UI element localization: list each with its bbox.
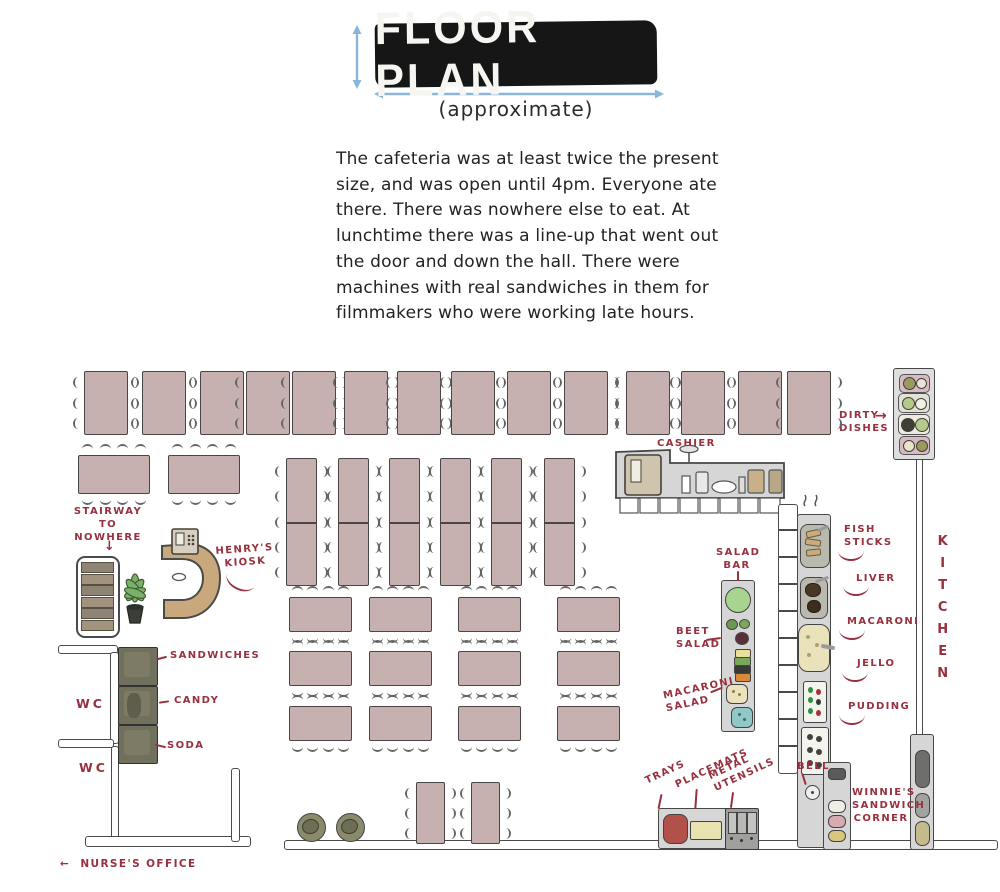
- pointer-curve: [839, 713, 865, 725]
- chair: [492, 640, 503, 650]
- chair: [386, 377, 396, 388]
- chair: [207, 495, 218, 505]
- chair: [275, 491, 285, 502]
- plan-area: STAIRWAY TO NOWHERE ↓ HENRY'S KIOSK SAND…: [0, 0, 1000, 892]
- dining-table: [289, 651, 352, 686]
- stair-step: [81, 585, 114, 596]
- chair: [560, 640, 571, 650]
- chair: [533, 517, 543, 528]
- dining-table: [344, 371, 388, 435]
- trash-can: [336, 813, 365, 842]
- dining-table: [369, 597, 432, 632]
- stair-step: [81, 574, 114, 585]
- chair: [533, 466, 543, 477]
- dining-table: [440, 458, 471, 586]
- chair: [492, 695, 503, 705]
- chair: [281, 398, 291, 409]
- rail-rung: [779, 637, 797, 639]
- label-sandwiches: SANDWICHES: [170, 649, 260, 662]
- chair: [131, 398, 141, 409]
- chair: [418, 695, 429, 705]
- chair: [131, 418, 141, 429]
- chair: [403, 695, 414, 705]
- chair: [576, 491, 586, 502]
- chair: [372, 640, 383, 650]
- pointer-curve: [842, 670, 868, 682]
- rail-rung: [779, 610, 797, 612]
- chair: [480, 567, 490, 578]
- chair: [575, 640, 586, 650]
- fish-sticks-tray: [800, 524, 830, 568]
- chair: [461, 640, 472, 650]
- chair: [323, 742, 334, 752]
- chair: [333, 398, 343, 409]
- cash-register-icon: [625, 455, 661, 495]
- pointer-curve: [223, 572, 255, 596]
- rail-rung: [779, 718, 797, 720]
- label-pudding: PUDDING: [848, 700, 910, 713]
- macaroni-tray: [798, 624, 830, 672]
- chair: [403, 640, 414, 650]
- dining-table: [458, 597, 521, 632]
- chair: [100, 444, 111, 454]
- chair: [507, 640, 518, 650]
- chair: [307, 695, 318, 705]
- pointer-curve: [843, 584, 869, 596]
- henrys-kiosk: [160, 528, 226, 632]
- trash-can: [297, 813, 326, 842]
- chair: [533, 567, 543, 578]
- chair: [492, 586, 503, 596]
- rail-rung: [779, 691, 797, 693]
- chair: [418, 742, 429, 752]
- label-wc-upper: WC: [76, 696, 105, 713]
- chair: [591, 640, 602, 650]
- chair: [727, 418, 737, 429]
- chair: [553, 377, 563, 388]
- chair: [507, 586, 518, 596]
- dining-table: [491, 458, 522, 586]
- chair: [327, 542, 337, 553]
- chair: [372, 742, 383, 752]
- chair: [172, 495, 183, 505]
- dining-table: [458, 651, 521, 686]
- dining-table: [507, 371, 551, 435]
- bell-button-icon: [805, 785, 820, 800]
- chair: [82, 495, 93, 505]
- dining-table: [142, 371, 186, 435]
- wall: [231, 768, 240, 842]
- chair: [378, 567, 388, 578]
- chair: [553, 418, 563, 429]
- chair: [446, 828, 456, 839]
- pointer-curve: [839, 628, 865, 640]
- chair: [480, 491, 490, 502]
- dining-table: [389, 458, 420, 586]
- chair: [100, 495, 111, 505]
- chair: [832, 377, 842, 388]
- chair: [418, 640, 429, 650]
- dining-table: [544, 458, 575, 586]
- pointer-curve: [838, 549, 864, 561]
- chair: [323, 586, 334, 596]
- chair: [429, 542, 439, 553]
- chair: [576, 542, 586, 553]
- stair-step: [81, 608, 114, 619]
- pointer-line: [730, 792, 734, 808]
- chair: [440, 398, 450, 409]
- chair: [461, 695, 472, 705]
- chair: [275, 542, 285, 553]
- chair: [225, 495, 236, 505]
- chair: [429, 517, 439, 528]
- chair: [378, 491, 388, 502]
- liver-tray: [800, 577, 828, 619]
- label-jello: JELLO: [857, 657, 895, 670]
- label-henrys-kiosk: HENRY'S KIOSK: [215, 541, 275, 571]
- chair: [235, 377, 245, 388]
- chair: [135, 495, 146, 505]
- chair: [496, 418, 506, 429]
- chair: [372, 695, 383, 705]
- chair: [460, 808, 470, 819]
- chair: [387, 742, 398, 752]
- chair: [189, 377, 199, 388]
- chair: [476, 742, 487, 752]
- chair: [275, 567, 285, 578]
- pointer-line: [737, 571, 739, 581]
- chair: [615, 418, 625, 429]
- chair: [307, 586, 318, 596]
- chair: [225, 444, 236, 454]
- dining-table: [338, 458, 369, 586]
- dining-table: [292, 371, 336, 435]
- chair: [323, 640, 334, 650]
- utensil-bins-icon: [725, 808, 759, 850]
- pointer-line: [694, 789, 697, 809]
- chair: [405, 828, 415, 839]
- wall-bottom: [284, 840, 998, 850]
- chair: [387, 695, 398, 705]
- tray-rail: [778, 504, 798, 774]
- pointer-line: [157, 656, 167, 660]
- label-candy: CANDY: [174, 694, 219, 707]
- chair: [576, 567, 586, 578]
- cashier-counter: [612, 438, 792, 520]
- chair: [429, 567, 439, 578]
- chair: [292, 695, 303, 705]
- chair: [235, 398, 245, 409]
- chair: [338, 742, 349, 752]
- chair: [207, 444, 218, 454]
- steam-icon: [799, 490, 827, 508]
- chair: [606, 586, 617, 596]
- wall-nurses-office: [85, 836, 251, 847]
- salad-bar-counter: [721, 580, 755, 732]
- chair: [446, 788, 456, 799]
- label-wc-lower: WC: [79, 760, 108, 777]
- chair: [476, 695, 487, 705]
- rail-rung: [779, 664, 797, 666]
- chair: [575, 695, 586, 705]
- dining-table: [787, 371, 831, 435]
- chair: [460, 788, 470, 799]
- chair: [440, 377, 450, 388]
- chair: [591, 742, 602, 752]
- chair: [523, 542, 533, 553]
- chair: [429, 466, 439, 477]
- chair: [606, 640, 617, 650]
- chair: [189, 398, 199, 409]
- chair: [405, 788, 415, 799]
- pointer-line: [657, 794, 662, 809]
- dining-table: [416, 782, 445, 844]
- rail-rung: [779, 556, 797, 558]
- chair: [135, 444, 146, 454]
- chair: [307, 640, 318, 650]
- serving-spoon-icon: [817, 525, 829, 533]
- down-arrow-icon: ↓: [104, 539, 115, 554]
- chair: [73, 398, 83, 409]
- dirty-dishes-cart: [893, 368, 935, 460]
- right-arrow-icon: →: [875, 408, 887, 424]
- rail-rung: [779, 583, 797, 585]
- chair: [560, 695, 571, 705]
- dining-table: [681, 371, 725, 435]
- dining-table: [369, 706, 432, 741]
- chair: [333, 377, 343, 388]
- floor-plan-illustration: FLOOR PLAN (approximate) The cafeteria w…: [0, 0, 1000, 892]
- chair: [575, 586, 586, 596]
- chair: [523, 466, 533, 477]
- dining-table: [458, 706, 521, 741]
- chair: [307, 742, 318, 752]
- chair: [476, 640, 487, 650]
- chair: [387, 586, 398, 596]
- chair: [405, 808, 415, 819]
- chair: [338, 695, 349, 705]
- chair: [131, 377, 141, 388]
- chair: [73, 418, 83, 429]
- stair-step: [81, 620, 114, 631]
- chair: [591, 586, 602, 596]
- chair: [82, 444, 93, 454]
- chair: [591, 695, 602, 705]
- chair: [476, 586, 487, 596]
- winnies-counter: [823, 762, 851, 850]
- dining-table: [626, 371, 670, 435]
- chair: [190, 444, 201, 454]
- chair: [117, 444, 128, 454]
- chair: [275, 517, 285, 528]
- chair: [327, 517, 337, 528]
- dining-table: [78, 455, 150, 494]
- chair: [496, 398, 506, 409]
- dining-table: [557, 706, 620, 741]
- stair-step: [81, 597, 114, 608]
- chair: [461, 586, 472, 596]
- jello-tray: [803, 681, 827, 723]
- chair: [460, 828, 470, 839]
- chair: [507, 695, 518, 705]
- chair: [523, 517, 533, 528]
- label-nurses-office: ← NURSE'S OFFICE: [60, 858, 197, 872]
- chair: [496, 377, 506, 388]
- dining-table: [168, 455, 240, 494]
- chair: [576, 517, 586, 528]
- chair: [189, 418, 199, 429]
- chair: [190, 495, 201, 505]
- label-salad-bar: SALAD BAR: [716, 546, 758, 572]
- chair: [553, 398, 563, 409]
- chair: [480, 466, 490, 477]
- left-arrow-icon: ←: [60, 858, 70, 870]
- wall: [58, 645, 118, 654]
- dining-table: [397, 371, 441, 435]
- chair: [501, 788, 511, 799]
- chair: [292, 640, 303, 650]
- chair: [403, 586, 414, 596]
- chair: [73, 377, 83, 388]
- salad-bowl-icon: [725, 587, 751, 613]
- chair: [776, 377, 786, 388]
- chair: [292, 742, 303, 752]
- chair: [403, 742, 414, 752]
- chair: [615, 398, 625, 409]
- chair: [670, 398, 680, 409]
- dining-table: [564, 371, 608, 435]
- chair: [615, 377, 625, 388]
- rail-rung: [779, 745, 797, 747]
- vending-machine-sandwiches: [118, 647, 158, 686]
- chair: [480, 517, 490, 528]
- chair: [372, 586, 383, 596]
- label-winnies-corner: WINNIE'S SANDWICH CORNER: [852, 786, 910, 826]
- chair: [575, 742, 586, 752]
- dining-table: [451, 371, 495, 435]
- chair: [727, 398, 737, 409]
- chair: [832, 398, 842, 409]
- vending-machine-soda: [118, 725, 158, 764]
- chair: [606, 695, 617, 705]
- beet-salad-bowl-icon: [735, 632, 749, 645]
- chair: [776, 398, 786, 409]
- chair: [386, 398, 396, 409]
- dining-table: [289, 597, 352, 632]
- label-cashier: CASHIER: [657, 437, 716, 450]
- dining-table: [84, 371, 128, 435]
- potted-plant-icon: [114, 566, 156, 626]
- chair: [492, 742, 503, 752]
- label-macaroni: MACARONI: [847, 615, 919, 628]
- dining-table: [289, 706, 352, 741]
- chair: [560, 742, 571, 752]
- label-soda: SODA: [167, 739, 204, 752]
- dining-table: [286, 458, 317, 586]
- dining-table: [557, 597, 620, 632]
- chair: [292, 586, 303, 596]
- chair: [446, 808, 456, 819]
- chair: [327, 466, 337, 477]
- stair-step: [81, 562, 114, 573]
- chair: [727, 377, 737, 388]
- chair: [533, 491, 543, 502]
- label-kitchen: KITCHEN: [934, 534, 951, 694]
- chair: [327, 567, 337, 578]
- chair: [387, 640, 398, 650]
- chair: [523, 567, 533, 578]
- label-fish-sticks: FISH STICKS: [844, 523, 892, 549]
- chair: [323, 695, 334, 705]
- vending-machine-candy: [118, 686, 158, 725]
- dining-table: [557, 651, 620, 686]
- chair: [172, 444, 183, 454]
- tray-stack-icon: [663, 814, 688, 844]
- chair: [606, 742, 617, 752]
- chair: [670, 377, 680, 388]
- chair: [429, 491, 439, 502]
- chair: [338, 586, 349, 596]
- chair: [275, 466, 285, 477]
- chair: [378, 542, 388, 553]
- chair: [501, 828, 511, 839]
- chair: [523, 491, 533, 502]
- chair: [378, 517, 388, 528]
- chair: [560, 586, 571, 596]
- chair: [576, 466, 586, 477]
- label-bell: BELL: [797, 760, 830, 773]
- chair: [533, 542, 543, 553]
- tray-counter: [658, 808, 758, 849]
- rail-rung: [779, 529, 797, 531]
- chair: [338, 640, 349, 650]
- chair: [480, 542, 490, 553]
- chair: [507, 742, 518, 752]
- chair: [117, 495, 128, 505]
- chair: [461, 742, 472, 752]
- wall: [58, 739, 114, 748]
- chair: [327, 491, 337, 502]
- dining-table: [369, 651, 432, 686]
- chair: [501, 808, 511, 819]
- dining-table: [471, 782, 500, 844]
- chair: [378, 466, 388, 477]
- chair: [418, 586, 429, 596]
- placemat-stack-icon: [690, 821, 722, 840]
- serving-spoon-icon: [821, 644, 835, 650]
- pointer-line: [159, 700, 169, 703]
- chair: [281, 377, 291, 388]
